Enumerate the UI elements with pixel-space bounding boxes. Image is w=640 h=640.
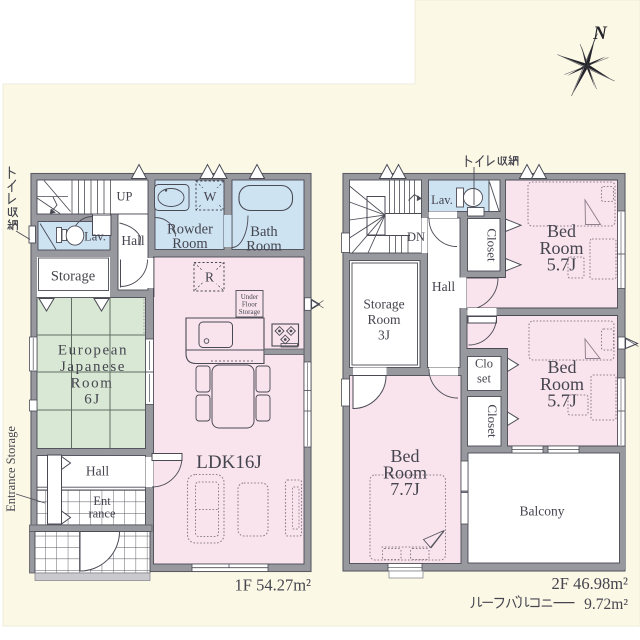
svg-text:Entrance Storage: Entrance Storage: [4, 426, 18, 512]
svg-text:1F 54.27m²: 1F 54.27m²: [235, 576, 312, 595]
svg-text:Hall: Hall: [121, 233, 144, 248]
svg-text:Room: Room: [367, 312, 401, 327]
svg-text:Storage: Storage: [239, 308, 260, 316]
svg-text:Closet: Closet: [485, 228, 500, 262]
svg-text:Storage: Storage: [363, 297, 404, 312]
svg-text:UP: UP: [117, 190, 133, 204]
svg-text:Hall: Hall: [86, 464, 109, 479]
svg-text:3J: 3J: [378, 328, 390, 343]
svg-text:Hall: Hall: [432, 279, 455, 294]
svg-text:Closet: Closet: [485, 404, 500, 438]
svg-text:rance: rance: [88, 507, 116, 521]
svg-text:N: N: [592, 23, 608, 44]
svg-text:Storage: Storage: [51, 269, 95, 285]
svg-text:Room: Room: [246, 239, 282, 255]
svg-text:Room: Room: [70, 376, 113, 392]
svg-text:5.7J: 5.7J: [547, 255, 577, 275]
svg-text:DN: DN: [407, 230, 425, 244]
svg-text:set: set: [477, 372, 491, 386]
svg-text:R: R: [205, 270, 214, 285]
svg-text:2F 46.98m²: 2F 46.98m²: [552, 574, 629, 593]
svg-text:7.7J: 7.7J: [390, 479, 420, 499]
svg-text:W: W: [204, 189, 217, 204]
svg-text:6J: 6J: [84, 392, 101, 408]
svg-text:Lav.: Lav.: [431, 193, 453, 207]
svg-text:Japanese: Japanese: [60, 359, 126, 375]
svg-text:LDK16J: LDK16J: [196, 452, 261, 473]
svg-text:Clo: Clo: [475, 357, 493, 371]
svg-text:Room: Room: [172, 236, 208, 252]
svg-text:European: European: [58, 343, 128, 359]
svg-text:5.7J: 5.7J: [547, 391, 577, 411]
svg-text:Lav.: Lav.: [84, 230, 106, 244]
svg-text:9.72m²: 9.72m²: [584, 596, 628, 613]
svg-text:Balcony: Balcony: [520, 504, 565, 519]
